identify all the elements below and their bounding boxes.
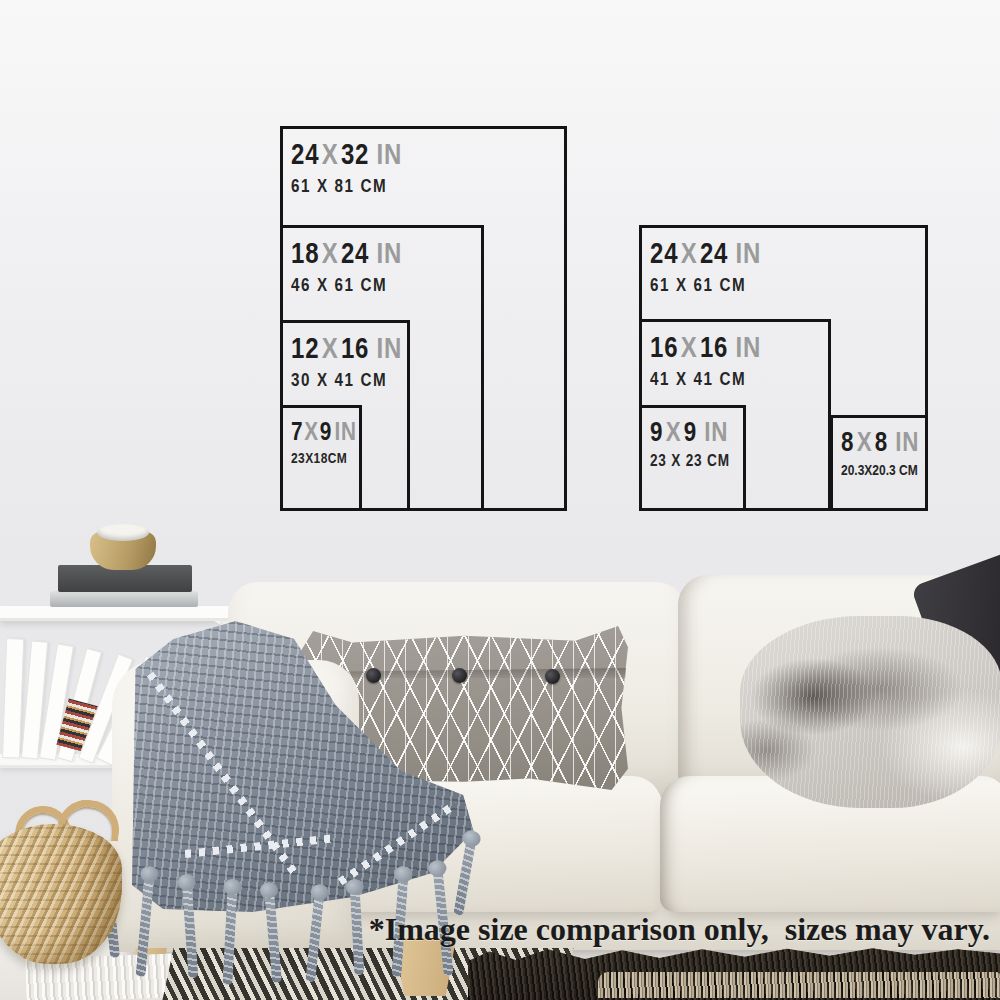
size-label: 24X32IN 61 X 81 CM	[283, 129, 564, 195]
pillow-button	[452, 668, 467, 683]
size-inches-line: 9X9IN	[650, 418, 724, 446]
size-label: 9X9IN 23 X 23 CM	[642, 408, 743, 469]
size-height-in: 24	[341, 236, 369, 269]
size-height-in: 16	[700, 330, 728, 363]
size-unit: IN	[376, 331, 402, 364]
size-cm-line: 61 X 61 CM	[650, 275, 870, 294]
size-height-in: 9	[320, 416, 332, 446]
size-inches-line: 12X16IN	[291, 333, 384, 363]
size-label: 12X16IN 30 X 41 CM	[283, 323, 407, 389]
size-x-separator: X	[666, 416, 682, 447]
size-width-in: 16	[650, 330, 678, 363]
size-x-separator: X	[304, 416, 319, 446]
gold-bowl-contents	[97, 524, 149, 541]
size-box-7x9-in: 7X9IN 23X18CM	[280, 405, 362, 511]
size-width-in: 12	[291, 331, 319, 364]
size-unit: IN	[334, 416, 356, 446]
disclaimer-text: *Image size comparison only, sizes may v…	[369, 911, 990, 948]
size-height-in: 8	[875, 426, 888, 457]
pillow-button	[366, 668, 381, 683]
size-cm-line: 61 X 81 CM	[291, 176, 509, 195]
size-label: 24X24IN 61 X 61 CM	[642, 228, 925, 294]
fur-pillow	[740, 616, 1000, 808]
size-width-in: 7	[291, 416, 303, 446]
book	[2, 638, 24, 759]
size-x-separator: X	[681, 236, 698, 269]
size-label: 16X16IN 41 X 41 CM	[642, 322, 828, 388]
pillow-button	[545, 669, 560, 684]
size-diagram-square: 24X24IN 61 X 61 CM 16X16IN 41 X 41 CM 9X…	[639, 225, 928, 511]
size-x-separator: X	[857, 426, 873, 457]
size-height-in: 9	[684, 416, 697, 447]
size-x-separator: X	[681, 330, 698, 363]
size-width-in: 18	[291, 236, 319, 269]
size-cm-line: 23 X 23 CM	[650, 452, 724, 469]
size-inches-line: 16X16IN	[650, 332, 792, 362]
size-inches-line: 7X9IN	[291, 418, 345, 444]
size-inches-line: 24X24IN	[650, 238, 870, 268]
size-cm-line: 46 X 61 CM	[291, 275, 443, 294]
size-unit: IN	[735, 236, 761, 269]
size-x-separator: X	[322, 331, 339, 364]
size-box-8x8-in: 8X8IN 20.3X20.3 CM	[830, 415, 928, 511]
size-inches-line: 8X8IN	[841, 428, 908, 456]
size-label: 18X24IN 46 X 61 CM	[283, 228, 481, 294]
size-inches-line: 24X32IN	[291, 139, 509, 169]
size-width-in: 9	[650, 416, 663, 447]
size-unit: IN	[704, 416, 728, 447]
size-unit: IN	[735, 330, 761, 363]
size-height-in: 24	[700, 236, 728, 269]
size-cm-line: 23X18CM	[291, 450, 345, 465]
size-unit: IN	[895, 426, 919, 457]
blanket-dotted-band	[185, 834, 335, 858]
size-unit: IN	[376, 236, 402, 269]
size-width-in: 8	[841, 426, 854, 457]
size-label: 8X8IN 20.3X20.3 CM	[833, 418, 925, 477]
wall-shelf-top-board	[0, 606, 233, 621]
size-label: 7X9IN 23X18CM	[283, 408, 359, 465]
size-height-in: 16	[341, 331, 369, 364]
silver-tray	[50, 591, 198, 607]
size-unit: IN	[376, 137, 402, 170]
size-height-in: 32	[341, 137, 369, 170]
size-box-9x9-in: 9X9IN 23 X 23 CM	[639, 405, 746, 511]
size-cm-line: 30 X 41 CM	[291, 370, 384, 389]
size-diagram-portrait: 24X32IN 61 X 81 CM 18X24IN 46 X 61 CM 12…	[280, 126, 567, 511]
size-inches-line: 18X24IN	[291, 238, 443, 268]
size-width-in: 24	[650, 236, 678, 269]
size-x-separator: X	[322, 236, 339, 269]
size-cm-line: 20.3X20.3 CM	[841, 462, 908, 477]
rug-fringe	[598, 972, 1000, 998]
product-photo-scene: 24X32IN 61 X 81 CM 18X24IN 46 X 61 CM 12…	[0, 0, 1000, 1000]
size-cm-line: 41 X 41 CM	[650, 369, 792, 388]
size-x-separator: X	[322, 137, 339, 170]
size-width-in: 24	[291, 137, 319, 170]
